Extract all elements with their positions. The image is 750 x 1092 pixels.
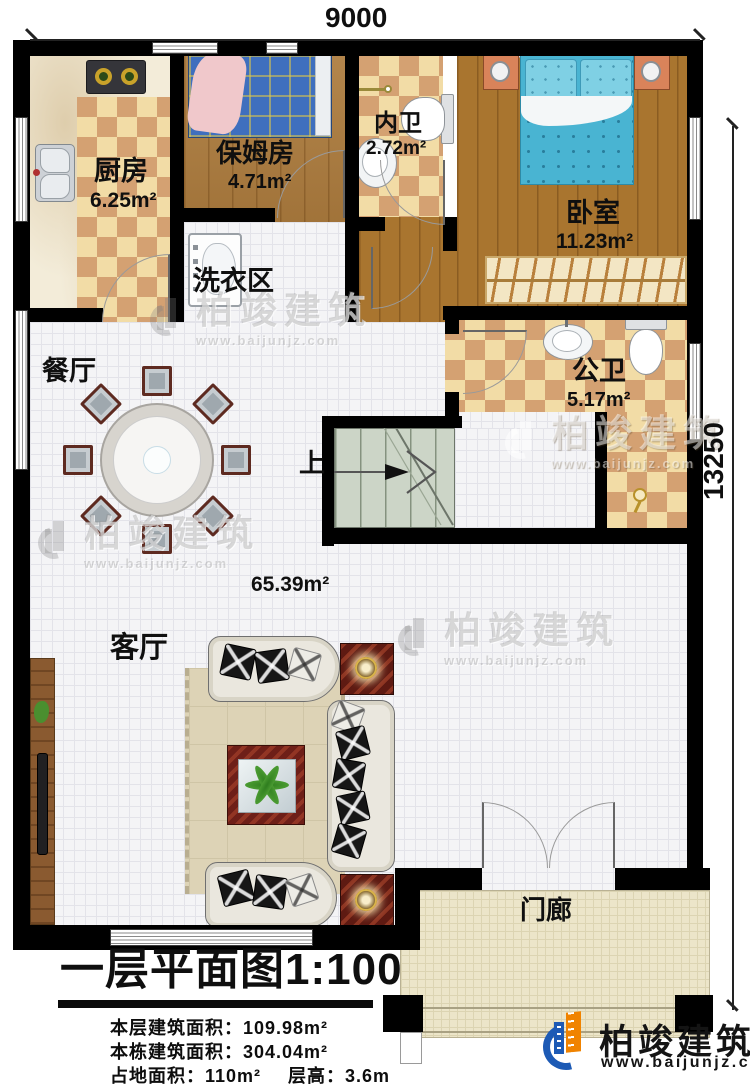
window-top-small: [266, 42, 298, 54]
wall-pubbath-west-lower: [445, 392, 459, 418]
stat-label: 本栋建筑面积：: [110, 1042, 243, 1062]
stat-label: 本层建筑面积：: [110, 1018, 243, 1038]
brand-logo: 柏竣建筑 www.baijunjz.com: [543, 1008, 743, 1078]
dining-table-center: [143, 446, 171, 474]
wall-laundry-east: [345, 222, 359, 322]
sofa-cushion: [254, 648, 290, 684]
lamp-icon: [641, 61, 661, 82]
wall-kitchen-east: [170, 56, 184, 322]
stair-landing-floor: [455, 428, 595, 528]
nanny-room-area: 4.71m²: [228, 172, 291, 192]
towel-bar-icon: [358, 88, 386, 91]
downlight-icon: [355, 657, 377, 679]
coffee-table: [227, 745, 305, 825]
sink-basin: [40, 148, 70, 173]
shower-head: [633, 488, 647, 502]
inner-bathroom-area: 2.72m²: [366, 139, 426, 158]
side-table: [340, 643, 394, 695]
sink-basin: [40, 174, 70, 199]
brand-website: www.baijunjz.com: [601, 1054, 750, 1072]
plan-title: 一层平面图1:100: [60, 948, 403, 992]
wall-nanny-south: [184, 208, 275, 222]
master-bed: [520, 53, 634, 185]
public-bathroom-area: 5.17m²: [567, 390, 630, 410]
nanny-bed: [188, 50, 332, 138]
dining-chair: [142, 366, 172, 396]
sofa-cushion: [219, 643, 257, 681]
dining-room-label: 餐厅: [42, 358, 96, 385]
wall-bedroom-south: [443, 306, 703, 320]
window-bottom-living: [110, 929, 313, 946]
dimension-right-line: [732, 126, 734, 1010]
stat-value: 109.98m²: [243, 1018, 328, 1038]
toilet-bowl: [629, 329, 663, 375]
bed-sheet-fold: [521, 96, 632, 126]
bed-pillow: [525, 59, 577, 101]
sofa-cushion: [252, 874, 288, 910]
bedroom-label: 卧室: [566, 200, 620, 227]
stat-value: 110m²: [205, 1066, 261, 1086]
public-bath-toilet: [624, 316, 666, 376]
nightstand: [634, 55, 670, 90]
public-bath-sink: [543, 320, 593, 360]
dining-chair: [142, 524, 172, 554]
window-top-nanny: [152, 42, 218, 54]
inner-bathroom-label: 内卫: [374, 112, 422, 136]
nanny-bed-pillow: [315, 52, 331, 136]
title-underline: [58, 1000, 373, 1008]
wall-hall-east-upper: [443, 217, 457, 251]
wall-stairs-west: [322, 416, 334, 546]
porch-pillar: [383, 995, 423, 1032]
wall-innerbath-south: [359, 217, 385, 231]
window-left-kitchen: [15, 117, 28, 222]
nanny-room-label: 保姆房: [216, 140, 294, 166]
wall-stairs-south: [322, 528, 702, 544]
stat-floor-height: 层高：3.6m: [288, 1062, 390, 1088]
stat-label: 占地面积：: [110, 1066, 205, 1086]
dining-chair: [63, 445, 93, 475]
gas-stove: [86, 60, 146, 94]
wall-top: [13, 40, 703, 56]
stat-value: 3.6m: [345, 1066, 390, 1086]
public-bathroom-label: 公卫: [572, 358, 626, 385]
laundry-area-label: 洗衣区: [193, 268, 274, 295]
kitchen-area: 6.25m²: [90, 190, 157, 211]
floor-plan: 柏竣建筑 www.baijunjz.com 柏竣建筑 www.baijunjz.…: [0, 0, 750, 1092]
lamp-icon: [490, 61, 510, 82]
sofa-cushion: [332, 758, 367, 793]
towel-bar-knob: [384, 85, 392, 93]
wall-entry-right: [615, 868, 710, 890]
porch-step: [400, 1032, 422, 1064]
stat-label: 层高：: [288, 1066, 345, 1086]
window-right-bedroom: [689, 117, 701, 220]
wardrobe-rail: [487, 279, 685, 282]
stat-floor-area: 本层建筑面积：109.98m²: [110, 1014, 328, 1040]
kitchen-label: 厨房: [94, 158, 148, 185]
logo-building-blue: [554, 1022, 564, 1054]
logo-building-orange: [566, 1011, 581, 1053]
tv-cabinet: [30, 658, 55, 925]
potted-plant-icon: [34, 701, 49, 723]
wall-landing-east: [595, 412, 607, 534]
porch-label: 门廊: [520, 897, 572, 923]
wall-kitchen-south: [30, 308, 103, 322]
bedroom-area: 11.23m²: [556, 231, 633, 252]
faucet-icon: [33, 169, 40, 176]
wall-entry-left: [417, 868, 482, 890]
stove-burner-icon: [121, 68, 138, 85]
living-room-label: 客厅: [110, 634, 168, 663]
dimension-top-line: [30, 39, 700, 41]
window-left-dining: [15, 310, 28, 470]
wall-pubbath-west-upper: [445, 320, 459, 334]
stove-burner-icon: [95, 68, 112, 85]
kitchen-sink: [35, 144, 75, 202]
sink-inner: [552, 330, 582, 352]
shower-drain-icon: [630, 488, 650, 514]
living-area-value: 65.39m²: [251, 574, 329, 595]
wall-stairs-north: [322, 416, 462, 428]
baijun-logo-icon: [543, 1010, 595, 1074]
dimension-right-value: 13250: [700, 411, 728, 511]
stat-value: 304.04m²: [243, 1042, 328, 1062]
downlight-icon: [355, 889, 377, 911]
stat-footprint: 占地面积：110m²: [110, 1062, 261, 1088]
side-table: [340, 874, 394, 928]
nanny-bed-blanket: [186, 50, 249, 136]
shower-stem: [634, 501, 642, 513]
stat-building-area: 本栋建筑面积：304.04m²: [110, 1038, 328, 1064]
bed-pillow: [580, 59, 632, 101]
dining-table: [100, 403, 214, 517]
wall-nanny-east: [345, 56, 359, 222]
sofa-cushion: [335, 790, 371, 826]
wardrobe: [485, 256, 687, 304]
tv-screen: [37, 753, 48, 855]
nightstand: [483, 55, 519, 90]
stairs-up-label: 上: [299, 450, 325, 476]
dining-chair: [221, 445, 251, 475]
dimension-top-value: 9000: [325, 4, 387, 32]
